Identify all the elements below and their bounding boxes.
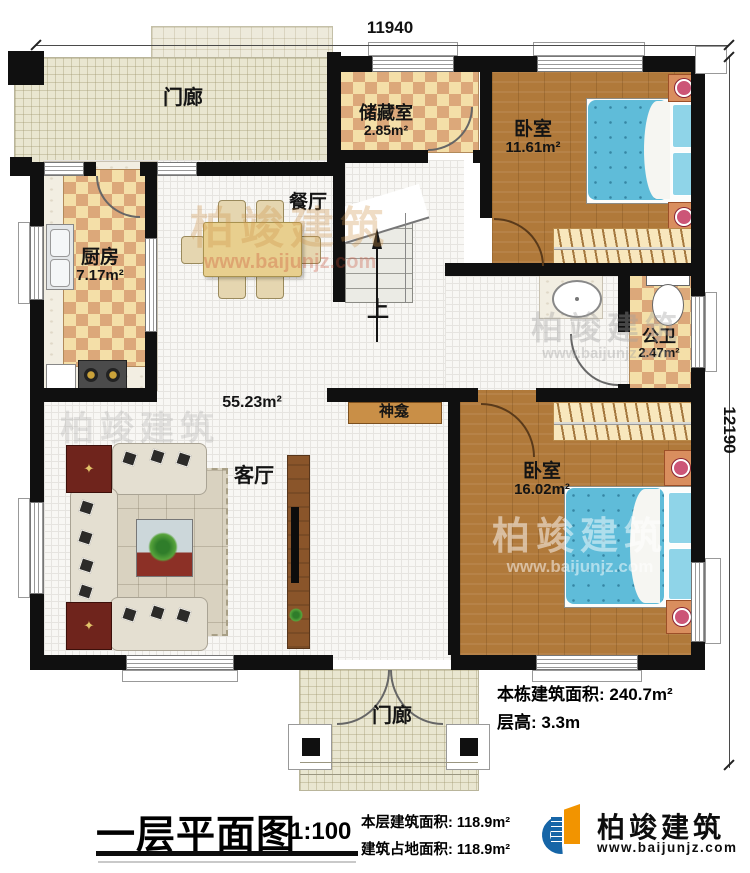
bedroom-top-area: 11.61m² bbox=[495, 140, 571, 157]
sofa-top bbox=[112, 443, 207, 495]
wall bbox=[30, 388, 157, 402]
end-table: ✦ bbox=[66, 602, 112, 650]
label-storage: 储藏室 2.85m² bbox=[345, 103, 427, 139]
wall bbox=[145, 162, 157, 238]
dimension-line-top bbox=[36, 45, 729, 46]
label-shrine: 神龛 bbox=[362, 404, 426, 421]
bedroom-top-name: 卧室 bbox=[514, 119, 552, 140]
label-bedroom-bottom: 卧室 16.02m² bbox=[502, 461, 582, 499]
window bbox=[44, 162, 84, 176]
bedroom-bottom-area: 16.02m² bbox=[502, 482, 582, 499]
window bbox=[30, 226, 44, 300]
note-building-area: 本栋建筑面积: 240.7m² bbox=[497, 680, 673, 705]
wall bbox=[618, 276, 630, 332]
storage-name: 储藏室 bbox=[359, 103, 413, 123]
kitchen-sliding-door bbox=[145, 238, 157, 332]
stairs-arrow-line bbox=[376, 248, 378, 342]
title-underline-thin bbox=[98, 861, 356, 863]
wall bbox=[445, 263, 705, 276]
porch-step-line bbox=[300, 774, 478, 775]
dining-table-icon bbox=[203, 222, 302, 277]
wall bbox=[454, 56, 537, 72]
porch-step-line bbox=[300, 762, 478, 763]
window-sill bbox=[122, 670, 238, 682]
bathroom-name: 公卫 bbox=[642, 327, 676, 346]
window bbox=[691, 562, 705, 642]
window bbox=[536, 655, 638, 670]
window bbox=[537, 56, 643, 72]
wall bbox=[480, 56, 492, 218]
wardrobe-bottom bbox=[553, 402, 693, 441]
window-sill bbox=[18, 498, 30, 598]
window-sill bbox=[705, 292, 717, 372]
note-floor-height: 层高: 3.3m bbox=[497, 708, 580, 733]
wall bbox=[197, 162, 333, 176]
wall bbox=[30, 655, 126, 670]
stair-stringer bbox=[405, 213, 406, 303]
plant-icon bbox=[148, 532, 178, 562]
toilet-bowl-icon bbox=[652, 284, 684, 326]
label-kitchen: 厨房 7.17m² bbox=[60, 247, 140, 285]
tv-icon bbox=[291, 507, 299, 583]
window-sill bbox=[705, 558, 721, 644]
footer-footprint-area: 建筑占地面积: 118.9m² bbox=[361, 842, 510, 858]
window bbox=[30, 502, 44, 594]
label-stairs-up: 上 bbox=[362, 298, 394, 323]
kitchen-name: 厨房 bbox=[81, 247, 119, 268]
wall bbox=[333, 163, 345, 302]
window bbox=[691, 296, 705, 368]
fridge-icon bbox=[46, 364, 76, 390]
wall bbox=[333, 56, 372, 72]
bathroom-area: 2.47m² bbox=[628, 346, 690, 361]
wall bbox=[638, 655, 705, 670]
footer-areas: 本层建筑面积: 118.9m² 建筑占地面积: 118.9m² bbox=[361, 810, 510, 864]
brand-website: www.baijunjz.com bbox=[597, 840, 738, 855]
sofa-left bbox=[70, 488, 118, 608]
label-hall-area: 55.23m² bbox=[216, 394, 288, 412]
wall bbox=[145, 332, 157, 390]
dining-chair bbox=[181, 236, 205, 264]
bath-sink-icon bbox=[552, 280, 602, 318]
scale-label: 1:100 bbox=[290, 818, 351, 846]
wall bbox=[536, 388, 705, 402]
window bbox=[372, 56, 454, 72]
window bbox=[126, 655, 234, 670]
brand-logo-icon bbox=[540, 802, 594, 860]
dimension-right-value: 12190 bbox=[719, 390, 739, 470]
footer-floor-area: 本层建筑面积: 118.9m² bbox=[361, 815, 510, 831]
window-sill bbox=[18, 222, 30, 304]
sofa-bottom bbox=[110, 597, 208, 651]
logo-building-orange bbox=[564, 804, 580, 844]
label-bedroom-top: 卧室 11.61m² bbox=[495, 119, 571, 157]
stairs-arrow-head bbox=[372, 228, 382, 249]
stove-icon bbox=[78, 360, 127, 390]
bed-top-sheet bbox=[644, 101, 670, 199]
porch-top-extension-floor bbox=[152, 27, 332, 60]
wall bbox=[445, 388, 478, 402]
label-dining: 餐厅 bbox=[280, 192, 336, 213]
logo-building-blue bbox=[551, 816, 562, 846]
title-underline bbox=[96, 851, 358, 856]
porch-column bbox=[460, 738, 478, 756]
kitchen-area: 7.17m² bbox=[60, 268, 140, 285]
end-table: ✦ bbox=[66, 445, 112, 493]
wall bbox=[10, 157, 32, 176]
wall bbox=[234, 655, 333, 670]
label-porch-top: 门廊 bbox=[143, 87, 223, 109]
window-sill bbox=[695, 46, 727, 74]
dimension-top-value: 11940 bbox=[353, 18, 427, 38]
entry-door-frame bbox=[157, 162, 197, 176]
floor-plan: ✦ ✦ bbox=[0, 0, 750, 873]
porch-top-floor bbox=[15, 58, 327, 165]
decor-plant-icon bbox=[289, 608, 303, 622]
wall bbox=[333, 150, 428, 163]
porch-column bbox=[8, 51, 44, 85]
wardrobe-top bbox=[553, 228, 693, 265]
wall bbox=[327, 388, 445, 402]
label-bathroom: 公卫 2.47m² bbox=[628, 327, 690, 361]
porch-column bbox=[302, 738, 320, 756]
label-porch-bottom: 门廊 bbox=[350, 705, 434, 727]
wall bbox=[451, 655, 536, 670]
label-living: 客厅 bbox=[226, 465, 282, 487]
storage-area: 2.85m² bbox=[345, 123, 427, 139]
bed-bottom-sheet bbox=[630, 489, 660, 603]
wall bbox=[84, 162, 96, 176]
wall bbox=[448, 402, 460, 655]
bedroom-bottom-name: 卧室 bbox=[523, 461, 561, 482]
